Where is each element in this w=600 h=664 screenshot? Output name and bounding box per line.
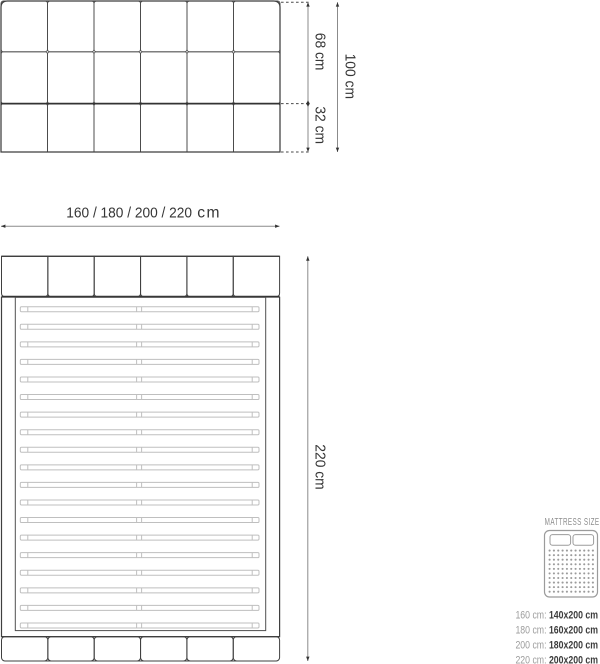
svg-text:cm: cm bbox=[197, 205, 221, 222]
svg-text:180 cm: 160x200 cm: 180 cm: 160x200 cm bbox=[515, 625, 598, 637]
svg-text:160 cm: 140x200 cm: 160 cm: 140x200 cm bbox=[515, 610, 598, 622]
svg-text:220 cm: 220 cm bbox=[311, 444, 327, 489]
svg-text:160 / 180 / 200 / 220: 160 / 180 / 200 / 220 bbox=[66, 205, 192, 221]
svg-text:MATTRESS SIZE: MATTRESS SIZE bbox=[545, 516, 600, 528]
svg-text:220 cm: 200x200 cm: 220 cm: 200x200 cm bbox=[515, 655, 598, 664]
svg-text:200 cm: 180x200 cm: 200 cm: 180x200 cm bbox=[515, 640, 598, 652]
svg-text:32 cm: 32 cm bbox=[311, 106, 327, 144]
svg-text:68 cm: 68 cm bbox=[311, 33, 327, 71]
svg-text:100 cm: 100 cm bbox=[341, 54, 357, 99]
